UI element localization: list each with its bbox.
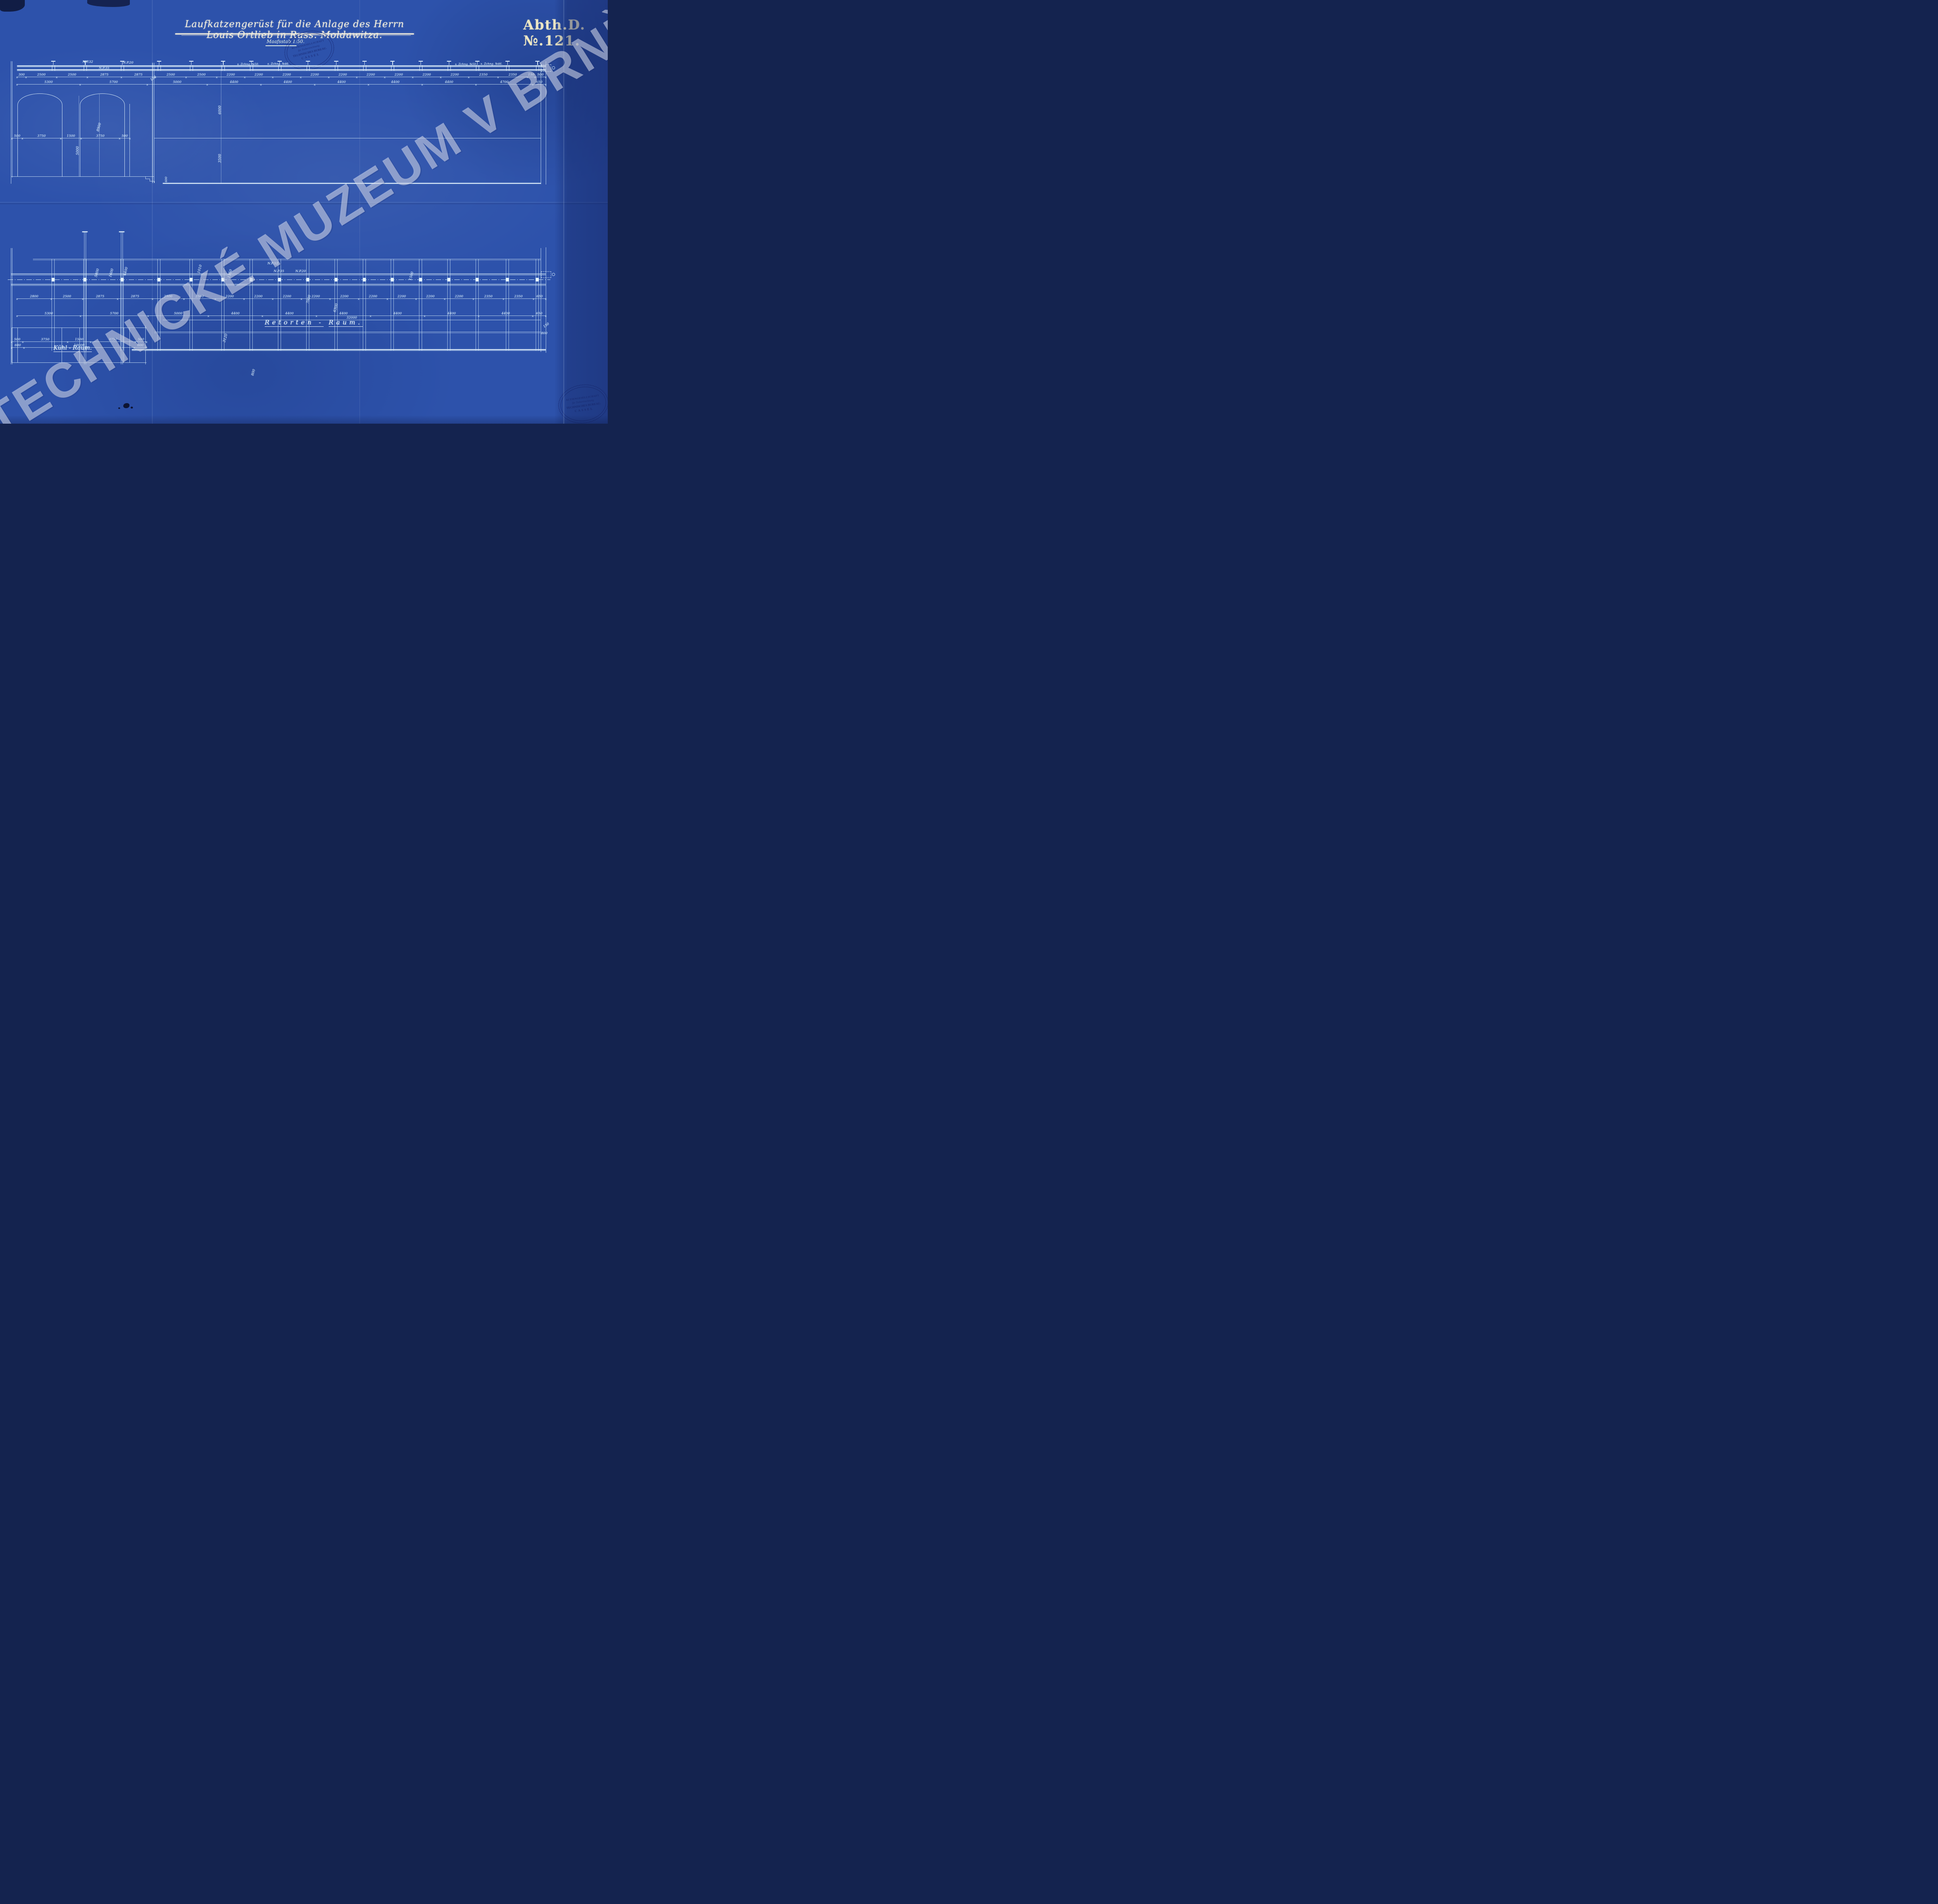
dimension-value: 2500 (186, 73, 217, 77)
clear-height-5000: 5000 (76, 146, 80, 155)
pl (447, 259, 448, 351)
stamp-line-4: CASSEL (301, 52, 321, 60)
paper-damage-top (87, 0, 130, 7)
blueprint-page: Laufkatzengerüst für die Anlage des Herr… (0, 0, 608, 424)
vl (546, 61, 546, 185)
dimension-value: 2200 (416, 295, 445, 298)
ref-note-46-a: s. Zchng. №46. (267, 62, 289, 66)
body (335, 65, 338, 71)
pl (536, 259, 536, 351)
stamp-line-1: ACTIENGESELLSCHAFT (566, 394, 599, 402)
plan-column (190, 259, 193, 351)
stem (223, 61, 223, 65)
dimension-value: 600 (134, 343, 147, 347)
plan-beam-label-np32: N.P.32 (267, 262, 278, 266)
plan-column (447, 259, 450, 351)
room-label-raum: Raum. (329, 319, 363, 327)
plan-column (391, 259, 394, 351)
hl (12, 362, 147, 363)
dimension-value: 500 (535, 73, 546, 77)
pl (250, 259, 250, 351)
body (363, 65, 366, 71)
dimension-value: 2200 (441, 73, 469, 77)
elevation-column (190, 61, 193, 71)
pl (419, 259, 419, 351)
elevation-dim-row-lower: 530057005000440044004400440044004700650 (17, 79, 546, 85)
dimension-value: 2500 (152, 295, 184, 298)
stem (449, 61, 449, 65)
pb (306, 278, 309, 281)
dimension-value: 2350 (498, 73, 528, 77)
title-underline (175, 33, 414, 34)
stamp-line-2: für Trebertrocknung (572, 398, 594, 405)
elevation-column (221, 61, 225, 71)
dimension-value: 3750 (22, 134, 61, 138)
dimension-value: 4400 (369, 80, 422, 84)
pl (506, 259, 506, 351)
dimension-value: 500 (119, 134, 130, 138)
dimension-value: 2200 (301, 295, 330, 298)
elevation-column (447, 61, 451, 71)
dimension-value: 2350 (473, 295, 503, 298)
dimension-value: 4400 (315, 80, 369, 84)
pl (391, 259, 391, 351)
dimension-value: 2200 (329, 73, 357, 77)
dimension-value: 3750 (23, 338, 68, 341)
pb (250, 278, 253, 281)
fold-crease-shadow (0, 203, 608, 204)
pl (221, 259, 222, 351)
dimension-value: 2500 (57, 73, 87, 77)
dimension-value: 2200 (413, 73, 441, 77)
plan-dim-row-upper: 2800250028752875250025002200220022002200… (17, 294, 546, 299)
pb (190, 278, 193, 281)
pb (419, 278, 422, 281)
hl (119, 231, 124, 232)
plan-right-dim-800: 800 (541, 331, 547, 335)
dimension-value: 2200 (359, 295, 387, 298)
body (250, 65, 253, 71)
dimension-value: 500 (12, 338, 23, 341)
dimension-value: 1500 (61, 134, 81, 138)
plan-column (250, 259, 253, 351)
pr (509, 259, 509, 351)
ink-blot-small-2 (131, 407, 133, 409)
beam-label-np35: N.P.35 (99, 66, 109, 70)
beam-label-np20: N.P.20 (123, 61, 133, 65)
ref-note-46-b: s. Zchng. №46. (481, 62, 502, 66)
body (121, 65, 124, 71)
height-dim-3500: 3500 (218, 154, 222, 163)
dimension-value: 4700 (476, 80, 533, 84)
pr (422, 259, 422, 351)
body (307, 65, 310, 71)
plan-beam-label-np35: N.P.35 (274, 269, 284, 273)
dimension-value: 5000 (147, 80, 207, 84)
body (476, 65, 479, 71)
dimension-value: 5300 (17, 80, 80, 84)
stem (507, 61, 508, 65)
stamp-line-2: für Trebertrocknung (298, 44, 320, 52)
plan-beam-label-np20: N.P.20 (295, 269, 306, 273)
stem (53, 61, 53, 65)
vl (11, 61, 11, 184)
dimension-value: 2200 (387, 295, 416, 298)
dimension-value: 650 (533, 80, 546, 84)
stamp-line-1: ACTIENGESELLSCHAFT (291, 39, 324, 50)
dimension-value: 2200 (217, 73, 245, 77)
stem (191, 61, 191, 65)
dimension-value: 2800 (17, 295, 51, 298)
ink-blot-small-1 (118, 407, 120, 409)
paper-damage-corner (0, 0, 25, 12)
pr (160, 259, 160, 351)
pr (366, 259, 366, 351)
dimension-value: 2200 (330, 295, 359, 298)
dimension-value: 650 (533, 295, 546, 298)
elevation-column (506, 61, 509, 71)
step-dim-600: 600 (164, 177, 168, 182)
pl (363, 259, 363, 351)
pb (506, 278, 509, 281)
plan-column (419, 259, 422, 351)
vl (12, 61, 12, 178)
pr (393, 259, 394, 351)
body (391, 65, 394, 71)
dimension-value: 2350 (469, 73, 498, 77)
dimension-value: 2500 (184, 295, 215, 298)
stamp-line-3: TECHNISCHES BUREAU. (292, 46, 327, 58)
pr (450, 259, 450, 351)
elevation-column (52, 61, 55, 71)
dimension-value: 2200 (301, 73, 329, 77)
stem (336, 61, 336, 65)
pb (391, 278, 394, 281)
stem (159, 61, 159, 65)
body (84, 65, 87, 71)
pb (83, 278, 86, 281)
stamp-line-4: CASSEL (574, 407, 594, 413)
dimension-value: 2875 (121, 73, 155, 77)
pr (478, 259, 479, 351)
dimension-value: 3750 (81, 134, 119, 138)
elevation-column (391, 61, 394, 71)
drawing-number: Abth.D.№.121. (523, 17, 608, 49)
plan-column (306, 259, 309, 351)
stem (364, 61, 365, 65)
body (278, 65, 281, 71)
dimension-value: 1500 (67, 338, 90, 341)
dimension-value: 500 (12, 134, 22, 138)
elevation-column (536, 61, 539, 71)
ref-note-50-a: s. Zchng. №50. (237, 62, 259, 66)
pb (221, 278, 224, 281)
hl (163, 183, 541, 184)
pb (52, 278, 55, 281)
pb (334, 278, 338, 281)
dimension-value: 4400 (422, 80, 476, 84)
hl (82, 231, 88, 232)
dimension-value: 4400 (207, 80, 261, 84)
elevation-column (363, 61, 366, 71)
page-edge-streak (563, 0, 564, 424)
pl (157, 259, 158, 351)
stamp-line-3: TECHNISCHES BUREAU. (566, 401, 601, 409)
dimension-value: 2200 (244, 295, 273, 298)
body (52, 65, 55, 71)
dimension-value: 5700 (80, 80, 147, 84)
fold-crease-vertical-1 (152, 0, 153, 424)
pr (538, 259, 539, 351)
pb (447, 278, 450, 281)
section-dim-row: 500375015003750500 (12, 133, 130, 138)
dimension-value: 2200 (357, 73, 384, 77)
line (552, 66, 555, 69)
dimension-value: 4400 (261, 80, 315, 84)
stem (392, 61, 393, 65)
room-label-retorten: Retorten - (265, 319, 324, 327)
beam-label-np32: N.P.32 (83, 60, 93, 64)
fold-crease-horizontal (0, 202, 608, 203)
body (158, 65, 161, 71)
page-edge-right (554, 0, 608, 424)
dimension-value: 2200 (216, 295, 244, 298)
ref-note-50-b: s. Zchng. №50. (455, 62, 477, 66)
pb (363, 278, 366, 281)
line (552, 273, 555, 276)
body (190, 65, 193, 71)
dimension-value: 2200 (272, 295, 301, 298)
pb (536, 278, 539, 281)
body (222, 65, 225, 71)
dimension-value: 2200 (445, 295, 473, 298)
height-dim-6000: 6000 (218, 105, 222, 114)
pb (476, 278, 479, 281)
dimension-value: 2200 (385, 73, 413, 77)
dimension-value: 2500 (26, 73, 57, 77)
hl (154, 138, 541, 138)
elevation-column (419, 61, 422, 71)
dimension-value: 2500 (155, 73, 186, 77)
stem (122, 61, 122, 65)
dimension-value: 500 (135, 338, 147, 341)
dimension-value: 5700 (81, 312, 148, 316)
fold-crease-vertical-2 (359, 0, 360, 424)
stem (537, 61, 538, 65)
body (448, 65, 451, 71)
plan-column (536, 259, 539, 351)
ink-blot-large (123, 403, 129, 408)
body (506, 65, 509, 71)
dimension-value: 300 (17, 73, 26, 77)
dimension-value: 2350 (503, 295, 534, 298)
dimension-value: 600 (12, 343, 24, 347)
dimension-value: 5300 (17, 312, 81, 316)
plan-section-dim-row: 500375015003750500 (12, 337, 147, 342)
stem (477, 61, 478, 65)
dimension-value: 2875 (117, 295, 152, 298)
page-edge-bottom (0, 415, 608, 424)
pr (252, 259, 253, 351)
pb (278, 278, 281, 281)
dimension-value: 2875 (83, 295, 117, 298)
dimension-value: 2200 (245, 73, 272, 77)
plan-column (157, 259, 160, 351)
dimension-value: 3750 (91, 338, 136, 341)
dimension-value: 150 (528, 73, 535, 77)
pr (192, 259, 193, 351)
stem (308, 61, 308, 65)
plan-rot-dim-800: 800 (251, 369, 256, 376)
dimension-value: 2200 (273, 73, 301, 77)
body (419, 65, 422, 71)
pl (306, 259, 307, 351)
pl (190, 259, 190, 351)
plan-column (363, 259, 366, 351)
plan-column (476, 259, 479, 351)
hl (145, 179, 150, 179)
dimension-value: 2500 (51, 295, 83, 298)
body (536, 65, 539, 71)
pb (157, 278, 160, 281)
pb (121, 278, 124, 281)
room-label-kuehl-raum: Kühl - Raum. (53, 344, 92, 352)
plan-column (506, 259, 509, 351)
stem (421, 61, 421, 65)
elevation-column (306, 61, 310, 71)
elevation-column (157, 61, 161, 71)
dimension-value: 2875 (87, 73, 121, 77)
elevation-column (334, 61, 338, 71)
elevation-dim-row-upper: 3002500250028752875250025002200220022002… (17, 72, 546, 77)
vl (154, 181, 155, 183)
pl (476, 259, 476, 351)
pr (309, 259, 309, 351)
